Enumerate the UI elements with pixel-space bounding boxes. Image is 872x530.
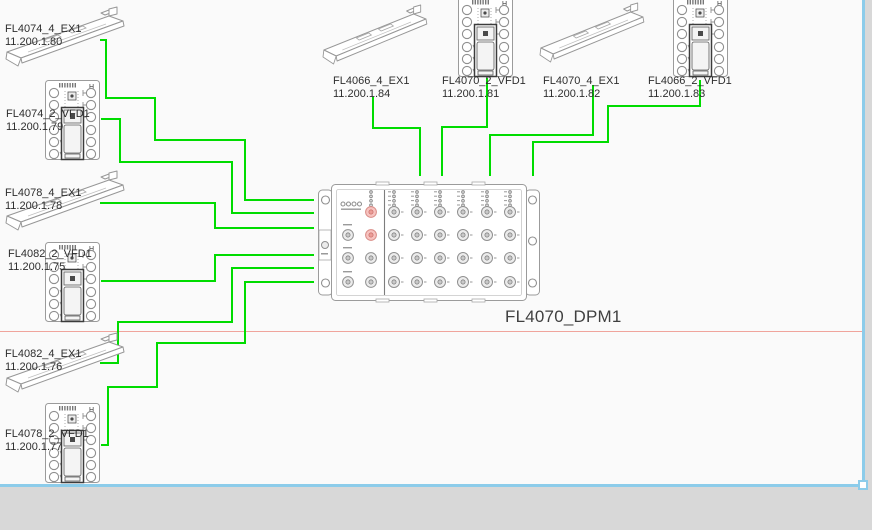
page-selection-border-bottom[interactable]: [0, 484, 866, 487]
page-resize-handle[interactable]: [858, 480, 868, 490]
device-name: FL4070_4_EX1: [543, 75, 619, 88]
wire-FL4078_4_EX1[interactable]: [100, 203, 314, 228]
network-topology-editor: HHHHH FL4074_4_EX111.200.1.80FL4074_2_VF…: [0, 0, 872, 530]
device-name: FL4074_4_EX1: [5, 23, 81, 36]
device-ip: 11.200.1.84: [333, 88, 409, 101]
device-label-FL4074_2_VFD1[interactable]: FL4074_2_VFD111.200.1.79: [6, 108, 90, 134]
device-name: FL4082_4_EX1: [5, 348, 81, 361]
device-name: FL4078_2_VFD1: [5, 428, 89, 441]
device-label-FL4078_2_VFD1[interactable]: FL4078_2_VFD111.200.1.77: [5, 428, 89, 454]
hub-label[interactable]: FL4070_DPM1: [505, 307, 622, 327]
device-ip: 11.200.1.82: [543, 88, 619, 101]
device-ip: 11.200.1.83: [648, 88, 732, 101]
device-name: FL4070_2_VFD1: [442, 75, 526, 88]
device-name: FL4074_2_VFD1: [6, 108, 90, 121]
device-label-FL4082_4_EX1[interactable]: FL4082_4_EX111.200.1.76: [5, 348, 81, 374]
device-ip: 11.200.1.80: [5, 36, 81, 49]
device-ip: 11.200.1.79: [6, 121, 90, 134]
device-label-FL4070_4_EX1[interactable]: FL4070_4_EX111.200.1.82: [543, 75, 619, 101]
device-FL4066_4_EX1[interactable]: [323, 5, 427, 64]
wire-FL4066_4_EX1[interactable]: [373, 97, 420, 176]
wire-FL4078_2_VFD1[interactable]: [101, 282, 314, 445]
wire-FL4074_2_VFD1[interactable]: [101, 119, 314, 213]
device-ip: 11.200.1.77: [5, 441, 89, 454]
device-name: FL4082_2_VFD1: [8, 248, 92, 261]
device-name: FL4066_4_EX1: [333, 75, 409, 88]
device-ip: 11.200.1.81: [442, 88, 526, 101]
device-FL4066_2_VFD1[interactable]: H: [674, 0, 728, 77]
device-name: FL4078_4_EX1: [5, 187, 81, 200]
device-label-FL4070_2_VFD1[interactable]: FL4070_2_VFD111.200.1.81: [442, 75, 526, 101]
page-selection-border-right[interactable]: [862, 0, 865, 487]
device-label-FL4074_4_EX1[interactable]: FL4074_4_EX111.200.1.80: [5, 23, 81, 49]
device-label-FL4066_2_VFD1[interactable]: FL4066_2_VFD111.200.1.83: [648, 75, 732, 101]
topology-diagram: HHHHH: [0, 0, 862, 484]
device-ip: 11.200.1.75: [8, 261, 92, 274]
wire-FL4074_4_EX1[interactable]: [100, 40, 314, 200]
diagram-page[interactable]: HHHHH FL4074_4_EX111.200.1.80FL4074_2_VF…: [0, 0, 862, 484]
device-label-FL4078_4_EX1[interactable]: FL4078_4_EX111.200.1.78: [5, 187, 81, 213]
device-ip: 11.200.1.76: [5, 361, 81, 374]
device-ip: 11.200.1.78: [5, 200, 81, 213]
device-FL4070_4_EX1[interactable]: [540, 3, 644, 62]
device-name: FL4066_2_VFD1: [648, 75, 732, 88]
device-FL4070_2_VFD1[interactable]: H: [459, 0, 513, 77]
device-FL4070_DPM1[interactable]: [319, 182, 540, 302]
device-label-FL4066_4_EX1[interactable]: FL4066_4_EX111.200.1.84: [333, 75, 409, 101]
device-label-FL4082_2_VFD1[interactable]: FL4082_2_VFD111.200.1.75: [8, 248, 92, 274]
